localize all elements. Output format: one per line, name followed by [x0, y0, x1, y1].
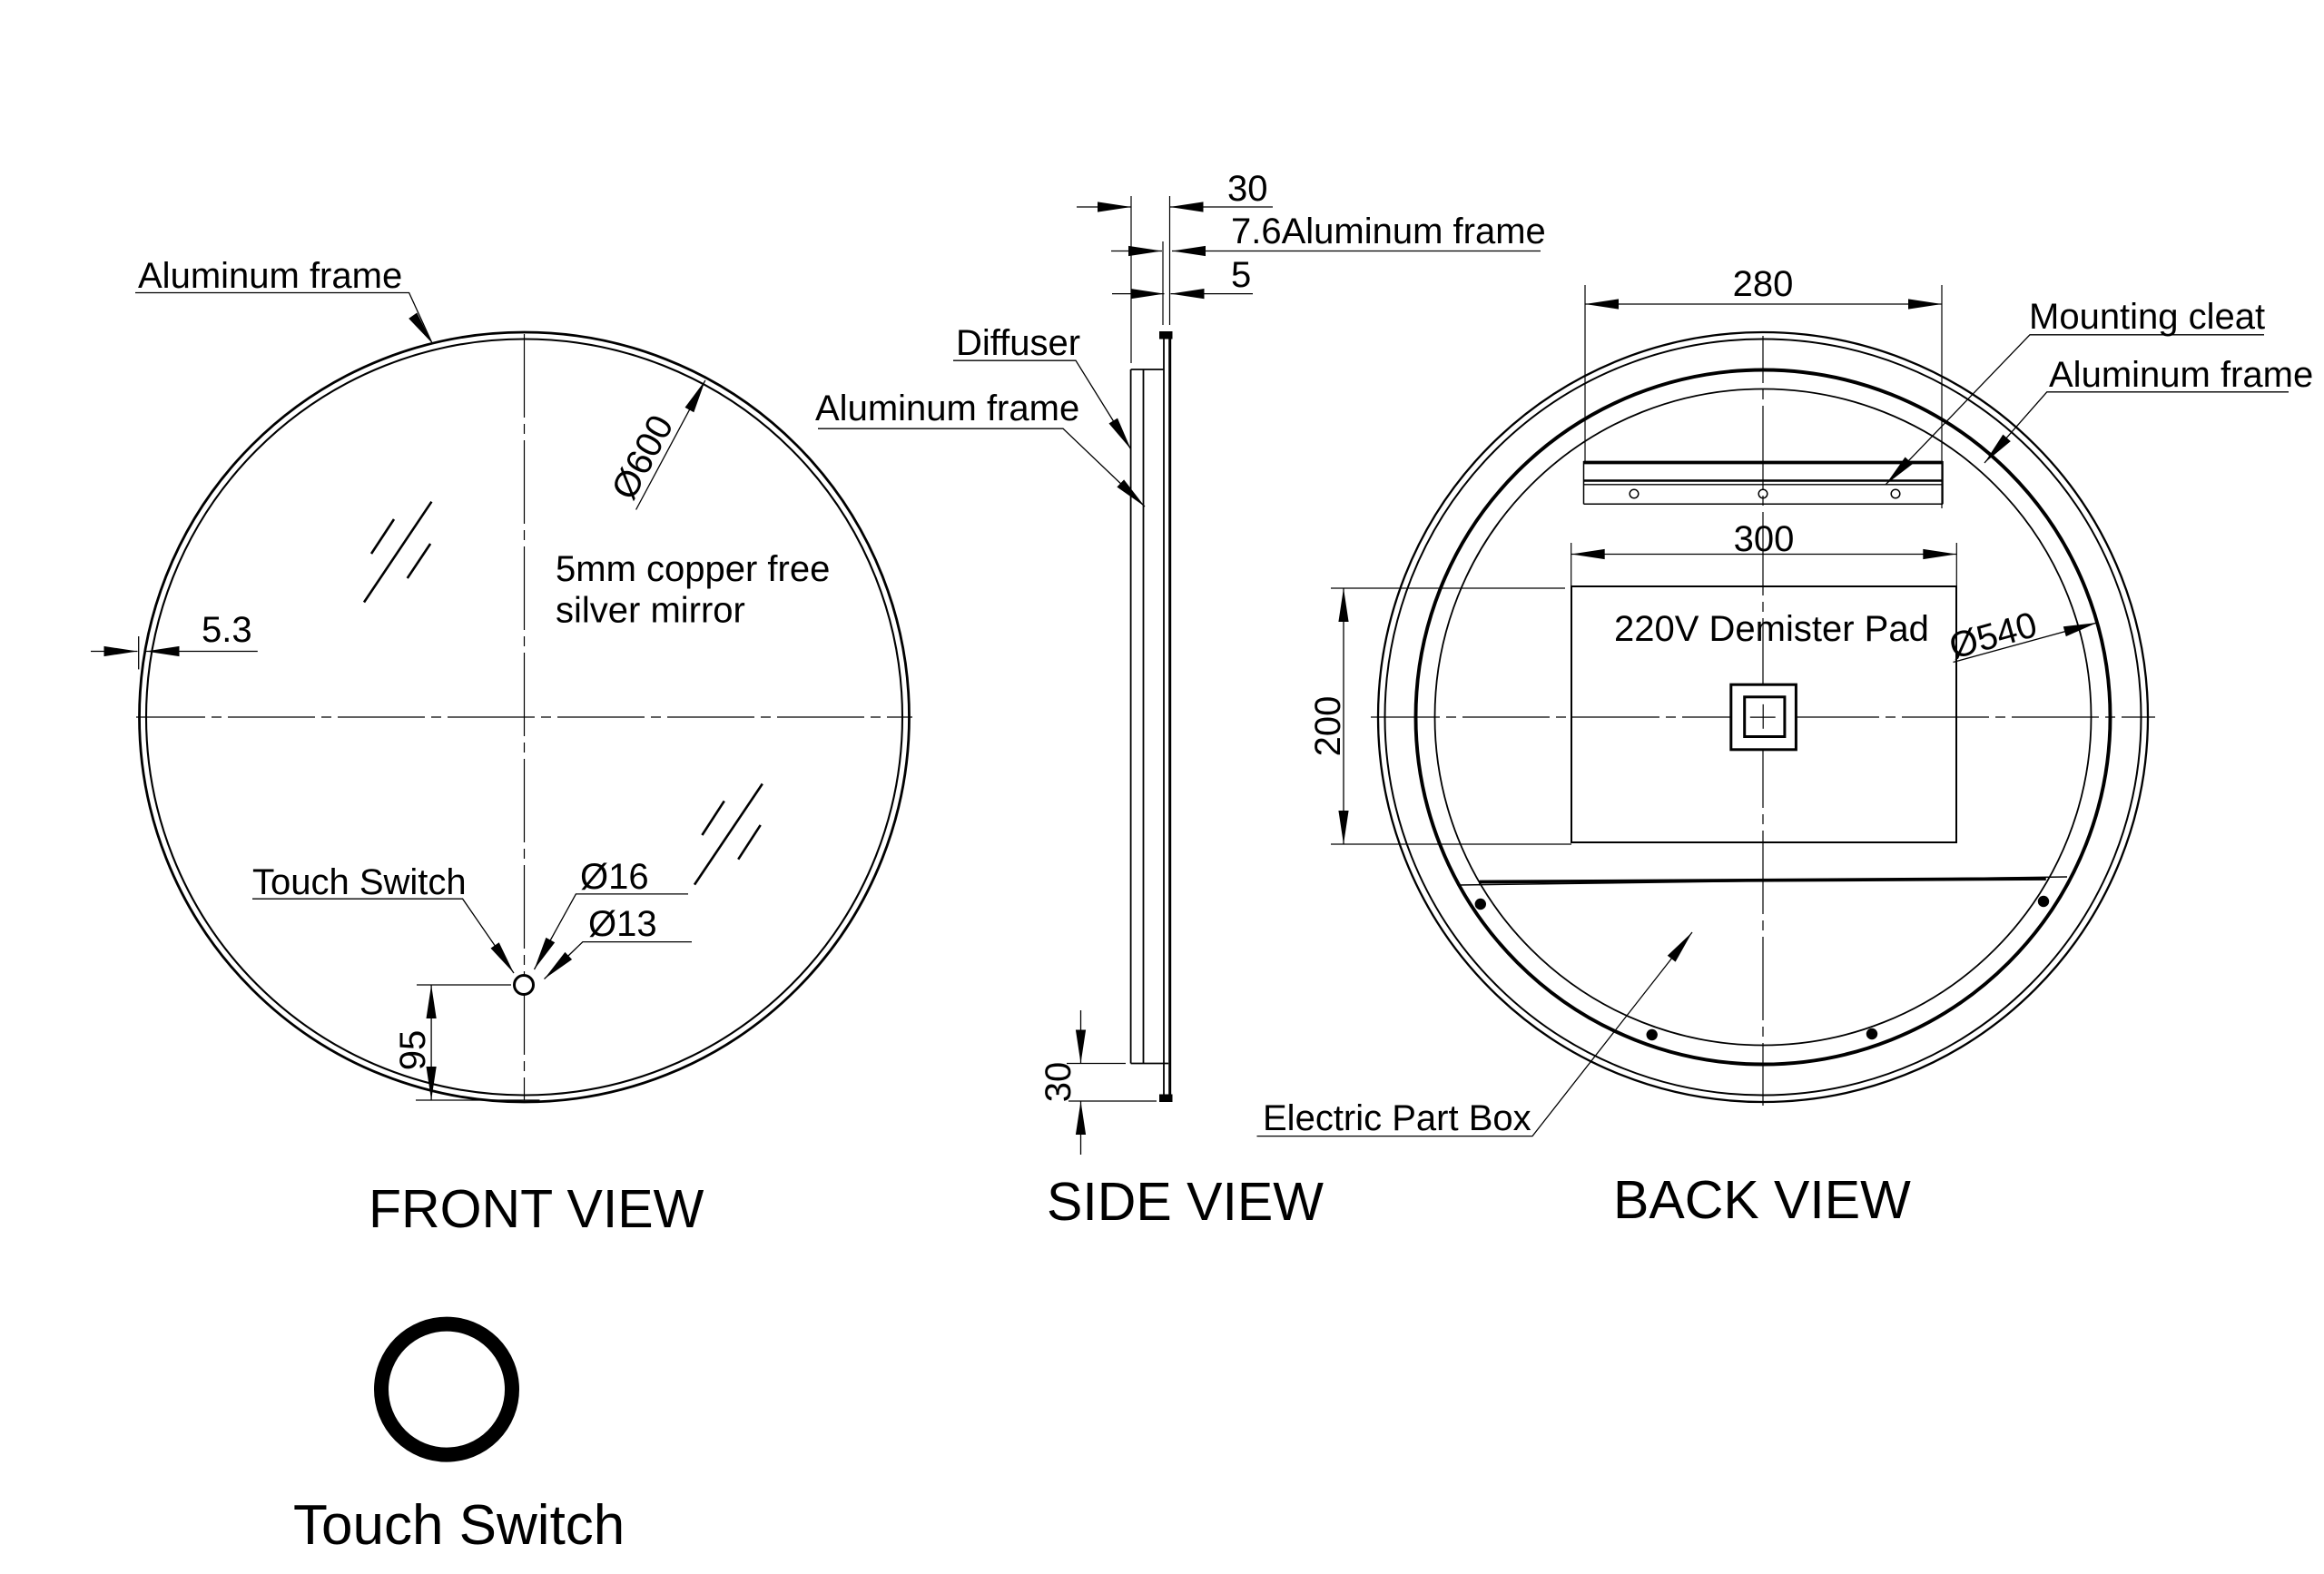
svg-text:Touch Switch: Touch Switch [293, 1494, 625, 1557]
svg-text:SIDE VIEW: SIDE VIEW [1047, 1172, 1324, 1232]
svg-text:95: 95 [393, 1030, 433, 1071]
svg-text:Diffuser: Diffuser [956, 323, 1080, 363]
svg-text:200: 200 [1308, 696, 1348, 757]
svg-text:FRONT VIEW: FRONT VIEW [369, 1179, 704, 1239]
svg-text:220V Demister Pad: 220V Demister Pad [1614, 609, 1929, 649]
svg-text:30: 30 [1227, 169, 1268, 209]
svg-text:7.6Aluminum frame: 7.6Aluminum frame [1231, 212, 1546, 251]
svg-text:BACK VIEW: BACK VIEW [1613, 1170, 1911, 1230]
svg-text:5.3: 5.3 [202, 610, 252, 650]
svg-text:Aluminum frame: Aluminum frame [815, 389, 1079, 428]
svg-text:silver mirror: silver mirror [556, 591, 745, 631]
svg-text:5: 5 [1231, 255, 1251, 295]
svg-text:Ø16: Ø16 [580, 857, 649, 897]
svg-text:Mounting cleat: Mounting cleat [2029, 297, 2265, 337]
svg-text:Ø13: Ø13 [588, 904, 657, 944]
svg-text:300: 300 [1734, 519, 1795, 559]
svg-text:280: 280 [1733, 264, 1794, 304]
svg-text:30: 30 [1039, 1062, 1078, 1103]
svg-text:Electric Part Box: Electric Part Box [1263, 1098, 1531, 1138]
svg-text:Touch Switch: Touch Switch [252, 862, 467, 902]
svg-text:Aluminum frame: Aluminum frame [138, 256, 402, 296]
svg-text:5mm copper free: 5mm copper free [556, 549, 830, 589]
svg-text:Aluminum frame: Aluminum frame [2049, 355, 2313, 395]
